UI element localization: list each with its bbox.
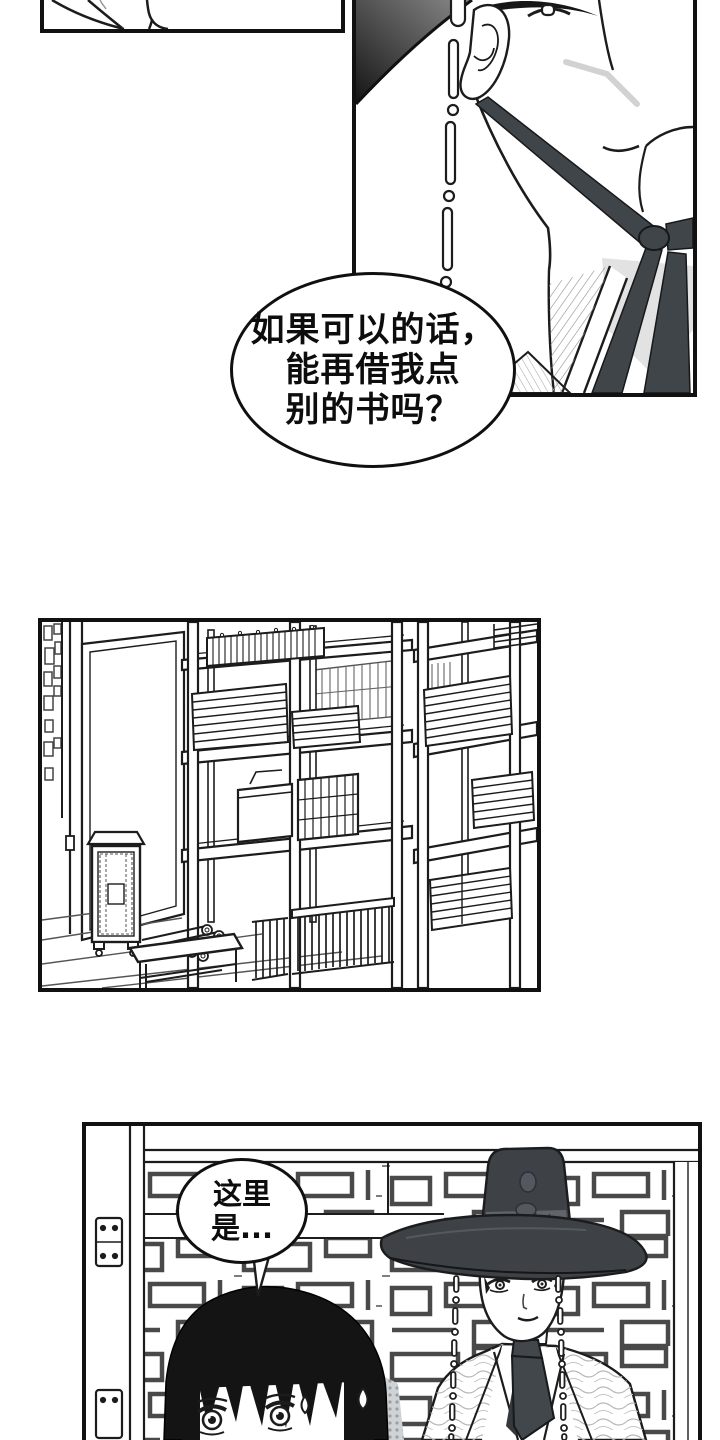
door-hinge (66, 836, 74, 850)
sweat-drop-1 (302, 1396, 309, 1413)
panel-1-fragment (40, 0, 345, 33)
door-stile (86, 1126, 144, 1440)
comic-page: { "page": { "background": "#ffffff", "in… (0, 0, 720, 1440)
hinge (96, 1218, 122, 1266)
bubble2-line2: 是... (211, 1211, 273, 1245)
panel-4-illustration (86, 1126, 698, 1440)
shading-line (100, 0, 106, 9)
ribbon-right (666, 218, 693, 250)
speech-bubble-request: 如果可以的话， 能再借我点 别的书吗？ (230, 272, 516, 468)
under-chin-line (639, 146, 646, 212)
speech-bubble-here-is: 这里 是... (176, 1158, 308, 1264)
ear (460, 5, 509, 99)
book-stacks-shelf2 (192, 684, 360, 750)
railing (252, 898, 394, 980)
panel-3-library (38, 618, 541, 992)
bubble1-line3: 别的书吗？ (286, 390, 461, 430)
bubble1-line1: 如果可以的话， (251, 310, 496, 350)
box-and-case-shelf3 (238, 770, 358, 842)
chin-line (646, 127, 693, 146)
hinge-lower (96, 1390, 122, 1438)
cheek-line (599, 0, 613, 70)
gat-emblem (520, 1172, 536, 1192)
lantern-cabinet (88, 832, 144, 956)
cheekbone-shading (566, 62, 637, 104)
panel-4-meeting (82, 1122, 702, 1440)
figure-fragment-lines (52, 0, 168, 29)
ribbon-knot (639, 226, 669, 250)
bubble2-line1: 这里 (213, 1177, 271, 1211)
panel-3-illustration (42, 622, 537, 988)
left-wall-lattice (44, 622, 62, 818)
bubble1-line2: 能再借我点 (286, 350, 461, 390)
eye-highlight (542, 5, 554, 15)
panel-1-illustration (44, 0, 341, 29)
mouth (603, 146, 639, 151)
chin-strap (476, 97, 656, 246)
